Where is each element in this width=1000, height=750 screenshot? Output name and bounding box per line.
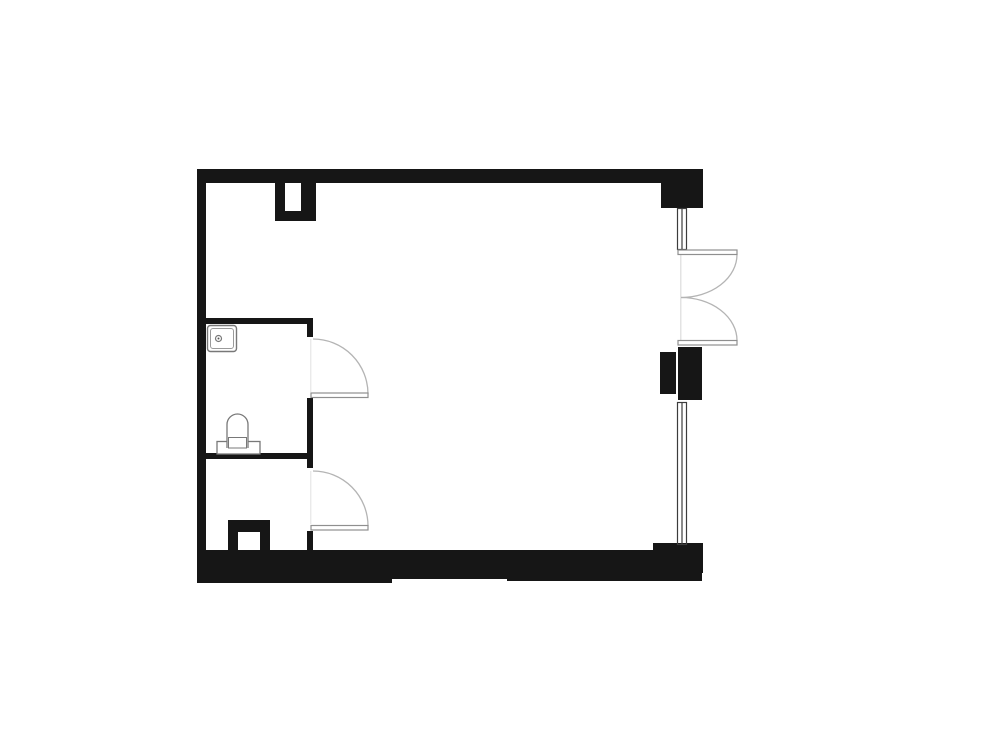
partition-wall-mid	[307, 398, 313, 468]
bottom-wall-ledge-mid	[392, 572, 507, 579]
french-door-top-arc	[681, 255, 737, 298]
floor-plan	[0, 0, 1000, 750]
right-pier-outer	[678, 347, 702, 400]
partition-stub-lower	[307, 531, 313, 552]
bath-door-arc	[313, 339, 368, 394]
toilet-seat	[229, 438, 247, 449]
duct-bottom-right-leg	[260, 520, 270, 551]
wc-door-leaf	[311, 526, 368, 531]
bottom-wall-ledge-left	[197, 572, 392, 583]
sink-drain-dot	[218, 338, 220, 340]
duct-top-bottom-bar	[275, 211, 316, 221]
bath-door-leaf	[311, 393, 368, 398]
french-door-bottom-leaf	[678, 341, 737, 346]
french-door-bottom-arc	[681, 298, 737, 341]
right-pier-inner	[660, 352, 676, 394]
floor-plan-svg	[0, 0, 1000, 750]
wc-door-arc	[313, 471, 368, 526]
duct-bottom-left-leg	[228, 520, 238, 551]
bottom-wall-ledge-right	[507, 572, 702, 581]
french-door-top-leaf	[678, 250, 737, 255]
partition-stub-upper	[307, 318, 313, 337]
bottom-right-corner-block	[653, 543, 703, 573]
bottom-wall-main	[197, 550, 655, 573]
top-wall	[197, 169, 703, 183]
bathroom-top-wall	[197, 318, 313, 324]
top-right-corner-block	[661, 169, 703, 208]
left-wall	[197, 169, 206, 583]
